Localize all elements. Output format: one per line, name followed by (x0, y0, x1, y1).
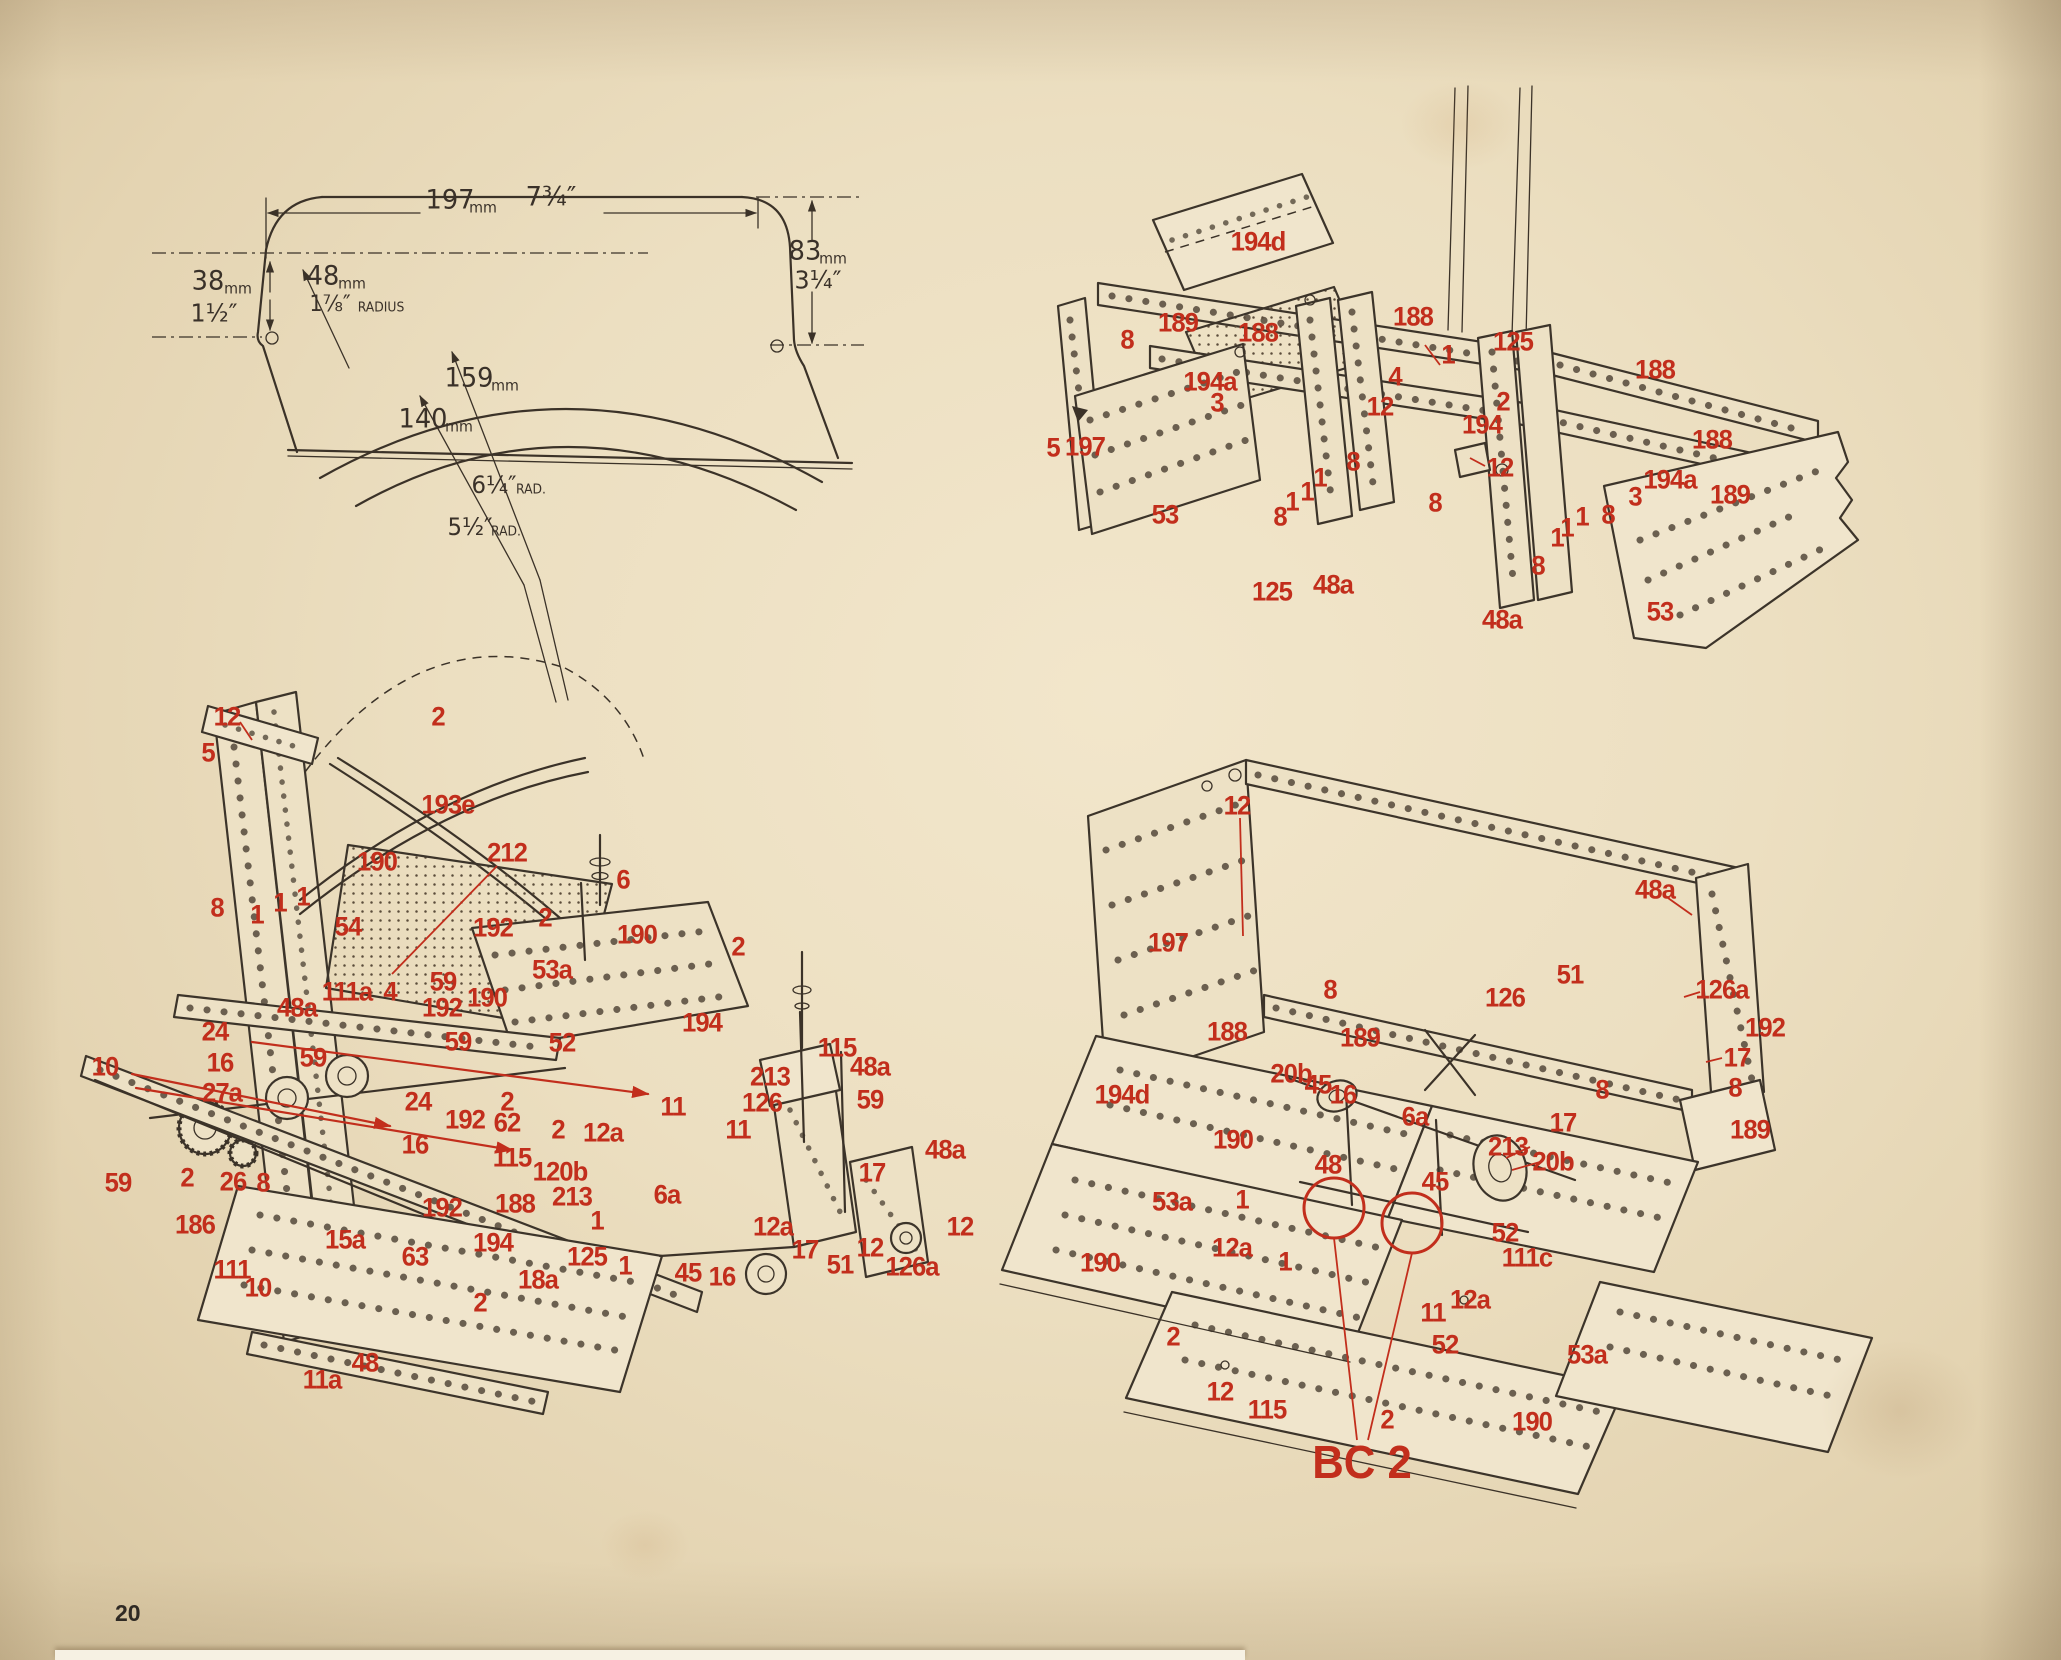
part-label-192: 192 (422, 995, 462, 1022)
part-label-2: 2 (731, 934, 744, 961)
part-label-12: 12 (1224, 793, 1251, 820)
part-label-53a: 53a (1567, 1342, 1607, 1369)
part-label-125: 125 (1493, 329, 1533, 356)
part-label-12a: 12a (1212, 1235, 1252, 1262)
dim-label-197: 197 (426, 187, 475, 214)
dim-label-38: 38 (192, 268, 225, 295)
part-label-6a: 6a (654, 1182, 681, 1209)
dim-label-159: 159 (445, 365, 494, 392)
dim-label-7-: 7¾″ (526, 184, 577, 211)
dim-label-mm: mm (445, 420, 473, 435)
part-label-11: 11 (1420, 1300, 1445, 1327)
part-label-11a: 11a (303, 1367, 342, 1394)
part-label-48a: 48a (925, 1137, 965, 1164)
dim-label-mm: mm (469, 201, 497, 216)
part-label-189: 189 (1730, 1117, 1770, 1144)
part-label-48a: 48a (1635, 877, 1675, 904)
part-label-213: 213 (552, 1184, 592, 1211)
next-page-edge (55, 1650, 1245, 1660)
part-label-51: 51 (827, 1252, 854, 1279)
part-label-192: 192 (1745, 1015, 1785, 1042)
part-label-3: 3 (1628, 484, 1641, 511)
part-label-115: 115 (1248, 1397, 1287, 1424)
part-label-194: 194 (682, 1010, 722, 1037)
part-label-17: 17 (859, 1160, 886, 1187)
part-label-16: 16 (709, 1264, 736, 1291)
part-label-8: 8 (1346, 449, 1359, 476)
part-label-10: 10 (92, 1054, 119, 1081)
part-label-193e: 193e (421, 792, 474, 819)
part-label-2: 2 (538, 905, 551, 932)
part-label-24: 24 (405, 1089, 432, 1116)
part-label-20b: 20b (1532, 1149, 1573, 1176)
part-label-16: 16 (1330, 1082, 1357, 1109)
part-label-12: 12 (1487, 455, 1514, 482)
part-label-1: 1 (590, 1208, 603, 1235)
part-label-1: 1 (1235, 1187, 1248, 1214)
part-label-17: 17 (792, 1237, 819, 1264)
part-label-16: 16 (207, 1050, 234, 1077)
part-label-51: 51 (1557, 962, 1584, 989)
part-label-111a: 111a (322, 979, 372, 1006)
dim-label-rad-: RAD. (491, 526, 521, 539)
part-label-126a: 126a (1695, 977, 1748, 1004)
part-label-12: 12 (214, 704, 241, 731)
dim-label-5-: 5½″ (447, 515, 492, 539)
dim-label-6-: 6¼″ (471, 473, 516, 497)
part-label-126: 126 (1485, 985, 1525, 1012)
part-label-189: 189 (1158, 310, 1198, 337)
part-label-12a: 12a (1450, 1287, 1490, 1314)
part-label-6a: 6a (1402, 1104, 1429, 1131)
dim-label-mm: mm (819, 252, 847, 267)
part-label-59: 59 (445, 1029, 472, 1056)
part-label-59: 59 (300, 1045, 327, 1072)
part-label-192: 192 (473, 915, 513, 942)
part-label-1: 1 (1300, 479, 1313, 506)
part-label-190: 190 (1213, 1127, 1253, 1154)
part-label-59: 59 (105, 1170, 132, 1197)
part-label-8: 8 (210, 895, 223, 922)
part-label-115: 115 (493, 1145, 532, 1172)
part-label-45: 45 (1305, 1072, 1332, 1099)
part-label-52: 52 (1432, 1332, 1459, 1359)
part-label-54: 54 (335, 914, 362, 941)
part-label-45: 45 (675, 1260, 702, 1287)
part-label-126: 126 (742, 1090, 782, 1117)
dim-label-mm: mm (491, 379, 519, 394)
part-label-1: 1 (1285, 489, 1298, 516)
part-label-15a: 15a (325, 1227, 365, 1254)
part-label-190: 190 (1080, 1250, 1120, 1277)
part-label-12: 12 (947, 1214, 974, 1241)
dim-label-3-: 3¼″ (794, 268, 841, 293)
part-label-194: 194 (473, 1230, 513, 1257)
part-label-190: 190 (357, 849, 397, 876)
dim-label-140: 140 (399, 406, 448, 433)
part-label-8: 8 (1601, 502, 1614, 529)
dim-label-radius: RADIUS (358, 302, 405, 315)
part-label-12a: 12a (583, 1120, 623, 1147)
part-label-8: 8 (1120, 327, 1133, 354)
part-label-3: 3 (1210, 390, 1223, 417)
part-label-125: 125 (567, 1244, 607, 1271)
part-label-16: 16 (402, 1132, 429, 1159)
part-label-10: 10 (245, 1275, 272, 1302)
part-label-2: 2 (180, 1165, 193, 1192)
part-label-2: 2 (1166, 1324, 1179, 1351)
part-label-194: 194 (1462, 412, 1502, 439)
part-label-12: 12 (857, 1235, 884, 1262)
part-label-192: 192 (445, 1107, 485, 1134)
part-label-213: 213 (750, 1064, 790, 1091)
page-number: 20 (115, 1600, 141, 1627)
part-label-1: 1 (1550, 525, 1563, 552)
part-label-126a: 126a (885, 1254, 938, 1281)
manual-page: 197mm7¾″38mm1½″48mm1⅞″RADIUS159mm140mm6¼… (0, 0, 2061, 1660)
dim-label-mm: mm (224, 282, 252, 297)
part-label-8: 8 (1595, 1077, 1608, 1104)
part-label-212: 212 (487, 840, 527, 867)
part-label-188: 188 (1393, 304, 1433, 331)
part-label-62: 62 (494, 1110, 521, 1137)
part-label-59: 59 (857, 1087, 884, 1114)
dim-label-mm: mm (338, 277, 366, 292)
part-label-48: 48 (352, 1350, 379, 1377)
part-label-194a: 194a (1643, 467, 1696, 494)
part-label-2: 2 (551, 1117, 564, 1144)
part-label-12a: 12a (753, 1214, 793, 1241)
part-label-17: 17 (1550, 1110, 1577, 1137)
part-label-27a: 27a (202, 1080, 242, 1107)
part-label-5: 5 (1046, 435, 1059, 462)
dimension-drawing-art (152, 197, 864, 702)
part-label-197: 197 (1148, 930, 1188, 957)
part-label-125: 125 (1252, 579, 1292, 606)
dim-label-48: 48 (307, 263, 340, 290)
line-art (0, 0, 2061, 1660)
part-label-188: 188 (1692, 427, 1732, 454)
part-label-189: 189 (1710, 482, 1750, 509)
part-label-8: 8 (1531, 553, 1544, 580)
part-label-1: 1 (296, 884, 309, 911)
part-label-2: 2 (1380, 1407, 1393, 1434)
part-label-1: 1 (618, 1253, 631, 1280)
part-label-52: 52 (549, 1030, 576, 1057)
part-label-12: 12 (1207, 1379, 1234, 1406)
part-label-197: 197 (1065, 434, 1105, 461)
part-label-190: 190 (1512, 1409, 1552, 1436)
dim-label-1-: 1⅞″ (309, 294, 350, 316)
part-label-48a: 48a (277, 995, 317, 1022)
dim-label-1-: 1½″ (190, 301, 237, 326)
part-label-48a: 48a (1313, 572, 1353, 599)
part-label-1: 1 (273, 890, 286, 917)
part-label-18a: 18a (518, 1267, 558, 1294)
part-label-213: 213 (1488, 1134, 1528, 1161)
part-label-11: 11 (660, 1094, 685, 1121)
part-label-1: 1 (1313, 465, 1326, 492)
part-label-1: 1 (1575, 504, 1588, 531)
part-label-8: 8 (1323, 977, 1336, 1004)
part-label-48a: 48a (850, 1054, 890, 1081)
part-label-2: 2 (431, 704, 444, 731)
part-label-48a: 48a (1482, 607, 1522, 634)
part-label-5: 5 (201, 740, 214, 767)
part-label-194d: 194d (1095, 1082, 1150, 1109)
part-label-188: 188 (1238, 320, 1278, 347)
part-label-190: 190 (467, 985, 507, 1012)
part-label-111c: 111c (1502, 1245, 1552, 1272)
part-label-1: 1 (250, 902, 263, 929)
part-label-11: 11 (725, 1117, 750, 1144)
part-label-53: 53 (1647, 599, 1674, 626)
dim-label-rad-: RAD. (516, 484, 546, 497)
part-label-63: 63 (402, 1244, 429, 1271)
part-label-4: 4 (1388, 364, 1401, 391)
part-label-45: 45 (1422, 1169, 1449, 1196)
part-label-190: 190 (617, 922, 657, 949)
part-label-192: 192 (422, 1195, 462, 1222)
part-label-189: 189 (1340, 1025, 1380, 1052)
part-label-26: 26 (220, 1169, 247, 1196)
part-label-17: 17 (1724, 1045, 1751, 1072)
part-label-8: 8 (1728, 1075, 1741, 1102)
part-label-2: 2 (473, 1290, 486, 1317)
part-label-4: 4 (383, 979, 396, 1006)
part-label-188: 188 (495, 1191, 535, 1218)
part-label-6: 6 (616, 867, 629, 894)
part-label-53: 53 (1152, 502, 1179, 529)
part-label-53a: 53a (532, 957, 572, 984)
part-label-1: 1 (1278, 1249, 1291, 1276)
part-label-8: 8 (1428, 490, 1441, 517)
dim-label-83: 83 (789, 238, 822, 265)
part-label-1: 1 (1441, 342, 1454, 369)
part-label-188: 188 (1207, 1019, 1247, 1046)
part-label-186: 186 (175, 1212, 215, 1239)
part-label-bc-2: BC 2 (1312, 1439, 1412, 1485)
part-label-194d: 194d (1231, 229, 1286, 256)
part-label-59: 59 (430, 969, 457, 996)
part-label-48: 48 (1315, 1152, 1342, 1179)
top-right-assembly-art (1058, 86, 1858, 648)
part-label-24: 24 (202, 1019, 229, 1046)
part-label-53a: 53a (1152, 1189, 1192, 1216)
part-label-12: 12 (1367, 394, 1394, 421)
part-label-8: 8 (256, 1170, 269, 1197)
part-label-188: 188 (1635, 357, 1675, 384)
